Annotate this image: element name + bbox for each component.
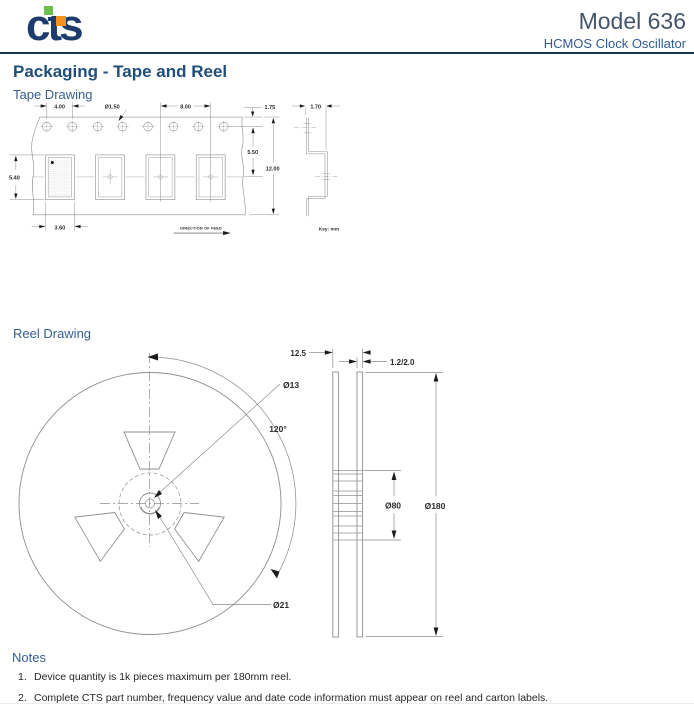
dim-flange-thickness: [339, 358, 387, 369]
reel-drawing: 120° Ø13 Ø21: [0, 318, 694, 660]
dim-pocket-width-label: 3.60: [55, 225, 66, 231]
direction-of-feed: DIRECTION OF FEED: [174, 226, 231, 235]
key-mm-label: Key: mm: [319, 227, 339, 233]
dim-window-angle-label: 120°: [269, 424, 287, 434]
logo-green-square: [44, 6, 53, 15]
section-title: Packaging - Tape and Reel: [13, 62, 227, 82]
dim-key-slot-label: Ø21: [273, 600, 289, 610]
dim-reel-diameter-label: Ø180: [425, 501, 446, 511]
logo-orange-square: [56, 16, 66, 26]
page-title: Model 636: [579, 8, 686, 35]
dim-pocket-length-label: 5.40: [9, 176, 20, 182]
page-subtitle: HCMOS Clock Oscillator: [544, 36, 686, 51]
dim-arbor-hole: [154, 384, 280, 498]
reel-side-view: [333, 372, 363, 637]
dim-sprocket-pitch-label: 4.00: [54, 104, 65, 110]
dim-reel-width-label: 12.5: [290, 349, 306, 358]
note-number: 1.: [18, 671, 34, 683]
dim-tape-width-label: 12.00: [266, 167, 280, 173]
dim-hub-diameter-label: Ø80: [385, 501, 401, 511]
dim-arbor-hole-label: Ø13: [283, 380, 299, 390]
header-rule: [0, 52, 694, 54]
notes-label: Notes: [12, 650, 46, 665]
dim-key-slot: [155, 510, 271, 605]
pin1-dot: [51, 161, 54, 164]
dim-reel-width: [309, 349, 371, 368]
tape-cross-section: [294, 118, 339, 216]
direction-of-feed-label: DIRECTION OF FEED: [180, 226, 222, 230]
dim-pocket-depth-label: 1.70: [310, 105, 321, 111]
dim-flange-thickness-label: 1.2/2.0: [390, 358, 415, 367]
dim-hole-diameter-label: Ø1.50: [105, 104, 120, 110]
dim-hole-to-pocket-label: 5.50: [247, 150, 258, 156]
footer-divider: [0, 703, 694, 704]
feed-arrow-icon: [223, 231, 231, 235]
reel-front-view: [19, 353, 281, 635]
tape-drawing: 4.00 Ø1.50 8.00 1.75 5.50 12.0: [0, 95, 694, 305]
note-text: Device quantity is 1k pieces maximum per…: [34, 671, 291, 683]
dim-window-angle: [148, 354, 296, 579]
dim-pocket-pitch-label: 8.00: [180, 104, 191, 110]
dim-edge-to-hole-label: 1.75: [265, 105, 276, 111]
note-item-1: 1. Device quantity is 1k pieces maximum …: [18, 671, 291, 683]
